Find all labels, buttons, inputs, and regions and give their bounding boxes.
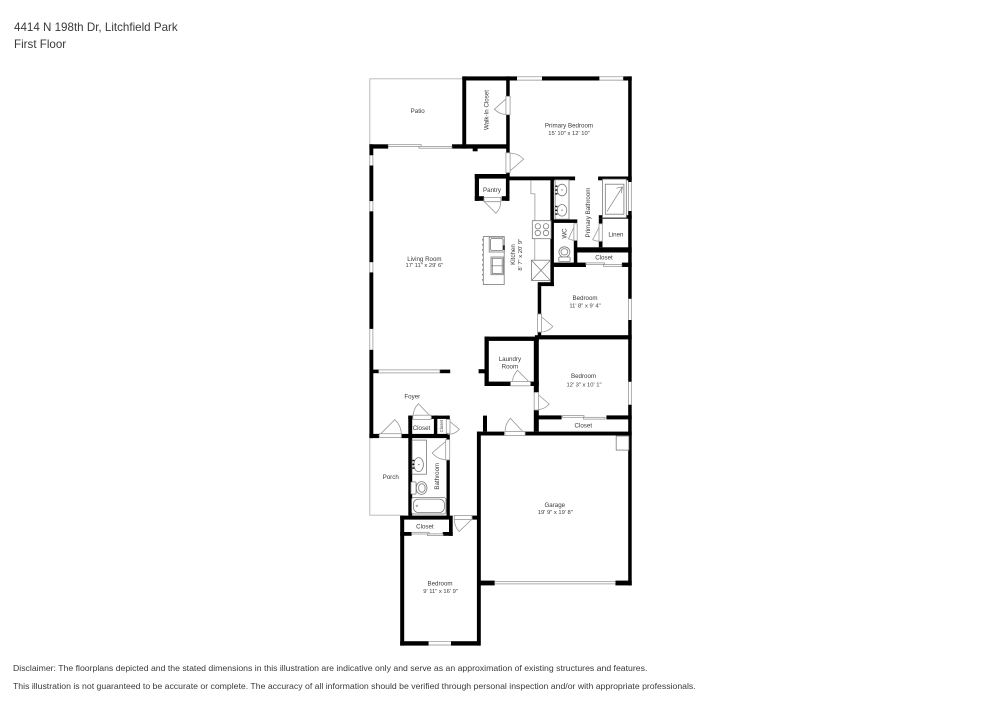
svg-text:11' 8" x 9' 4": 11' 8" x 9' 4" xyxy=(569,303,600,309)
svg-text:First Floor: First Floor xyxy=(14,38,66,51)
svg-text:Primary Bedroom: Primary Bedroom xyxy=(545,123,593,130)
svg-text:Pantry: Pantry xyxy=(483,187,502,194)
svg-text:Bedroom: Bedroom xyxy=(572,295,597,302)
svg-text:Walk-In Closet: Walk-In Closet xyxy=(484,90,491,130)
svg-text:Kitchen: Kitchen xyxy=(510,244,517,265)
svg-text:Laundry: Laundry xyxy=(499,356,522,363)
svg-text:8' 7" x 20' 9": 8' 7" x 20' 9" xyxy=(518,239,524,271)
svg-text:9' 11" x 16' 9": 9' 11" x 16' 9" xyxy=(423,589,458,595)
svg-text:Bedroom: Bedroom xyxy=(571,373,596,380)
svg-text:Linen: Linen xyxy=(608,231,624,238)
svg-text:4414 N 198th Dr, Litchfield Pa: 4414 N 198th Dr, Litchfield Park xyxy=(14,21,178,34)
svg-text:Primary Bathroom: Primary Bathroom xyxy=(585,188,592,238)
svg-text:Garage: Garage xyxy=(544,502,565,509)
svg-text:Closet: Closet xyxy=(416,524,434,531)
svg-text:Closet: Closet xyxy=(413,425,431,432)
svg-text:Closet: Closet xyxy=(595,254,613,261)
svg-text:15' 10" x 12' 10": 15' 10" x 12' 10" xyxy=(548,131,589,137)
svg-text:WC: WC xyxy=(562,228,569,239)
svg-text:17' 11" x 29' 6": 17' 11" x 29' 6" xyxy=(405,263,443,269)
svg-text:19' 9" x 19' 8": 19' 9" x 19' 8" xyxy=(538,510,573,516)
svg-text:Bedroom: Bedroom xyxy=(427,581,452,588)
svg-text:Closet: Closet xyxy=(439,419,444,432)
svg-text:Closet: Closet xyxy=(575,423,593,430)
svg-text:This illustration is not guara: This illustration is not guaranteed to b… xyxy=(13,681,696,691)
svg-text:Disclaimer: The floorplans dep: Disclaimer: The floorplans depicted and … xyxy=(13,663,647,673)
svg-text:Room: Room xyxy=(502,363,519,370)
svg-text:Foyer: Foyer xyxy=(404,394,420,401)
svg-text:Bathroom: Bathroom xyxy=(434,463,441,490)
svg-text:Porch: Porch xyxy=(383,474,400,481)
svg-text:12' 3" x 10' 1": 12' 3" x 10' 1" xyxy=(566,383,601,389)
svg-text:Patio: Patio xyxy=(411,108,426,115)
